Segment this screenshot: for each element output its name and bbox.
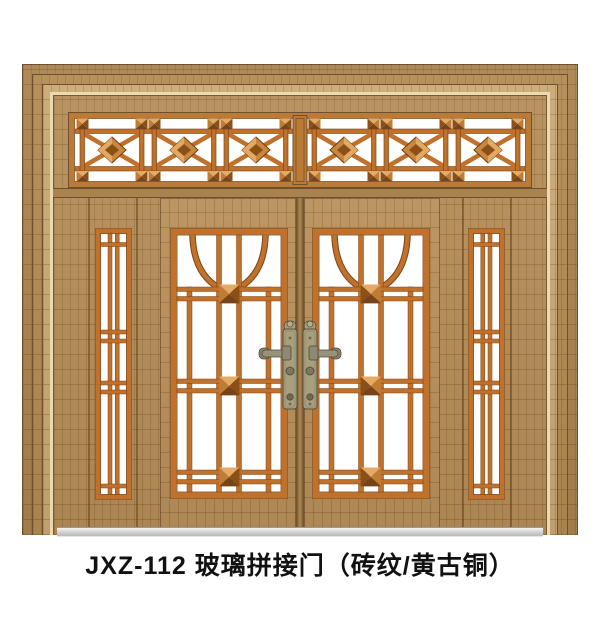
product-photo-door: JXZ-112 玻璃拼接门（砖纹/黄古铜） — [0, 0, 600, 628]
door-glass-and-hardware — [0, 0, 600, 628]
transom-center-post — [293, 116, 307, 185]
door-glass-grid-left — [171, 229, 288, 499]
transom-window — [69, 113, 532, 188]
door-glass-grid-right — [313, 229, 430, 499]
sidelight-window-right — [469, 229, 505, 500]
sidelight-window-left — [96, 229, 132, 500]
product-caption: JXZ-112 玻璃拼接门（砖纹/黄古铜） — [0, 546, 600, 582]
